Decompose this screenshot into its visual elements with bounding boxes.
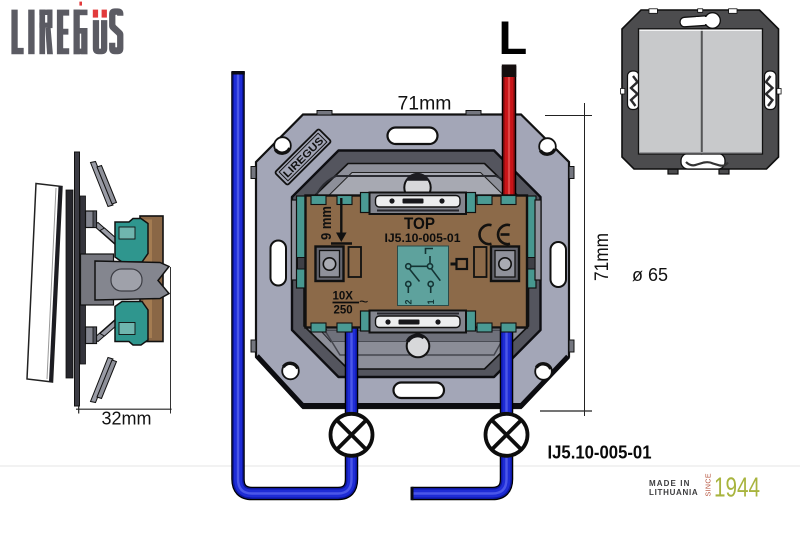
- svg-text:10X: 10X: [333, 291, 354, 303]
- svg-text:SINCE: SINCE: [706, 473, 713, 496]
- svg-text:9 mm: 9 mm: [319, 206, 335, 240]
- svg-text:IJ5.10-005-01: IJ5.10-005-01: [548, 442, 652, 463]
- svg-text:~: ~: [359, 294, 368, 311]
- svg-text:250: 250: [334, 305, 353, 317]
- svg-text:71mm: 71mm: [592, 233, 613, 281]
- svg-text:1944: 1944: [714, 473, 760, 503]
- svg-text:L: L: [499, 11, 528, 64]
- svg-text:2: 2: [404, 299, 414, 304]
- svg-text:ø 65: ø 65: [632, 265, 668, 285]
- svg-text:1: 1: [426, 299, 436, 304]
- svg-text:71mm: 71mm: [398, 94, 452, 115]
- svg-text:LITHUANIA: LITHUANIA: [649, 488, 698, 497]
- svg-text:IJ5.10-005-01: IJ5.10-005-01: [385, 231, 461, 245]
- svg-text:MADE IN: MADE IN: [649, 479, 690, 488]
- svg-text:32mm: 32mm: [102, 409, 152, 429]
